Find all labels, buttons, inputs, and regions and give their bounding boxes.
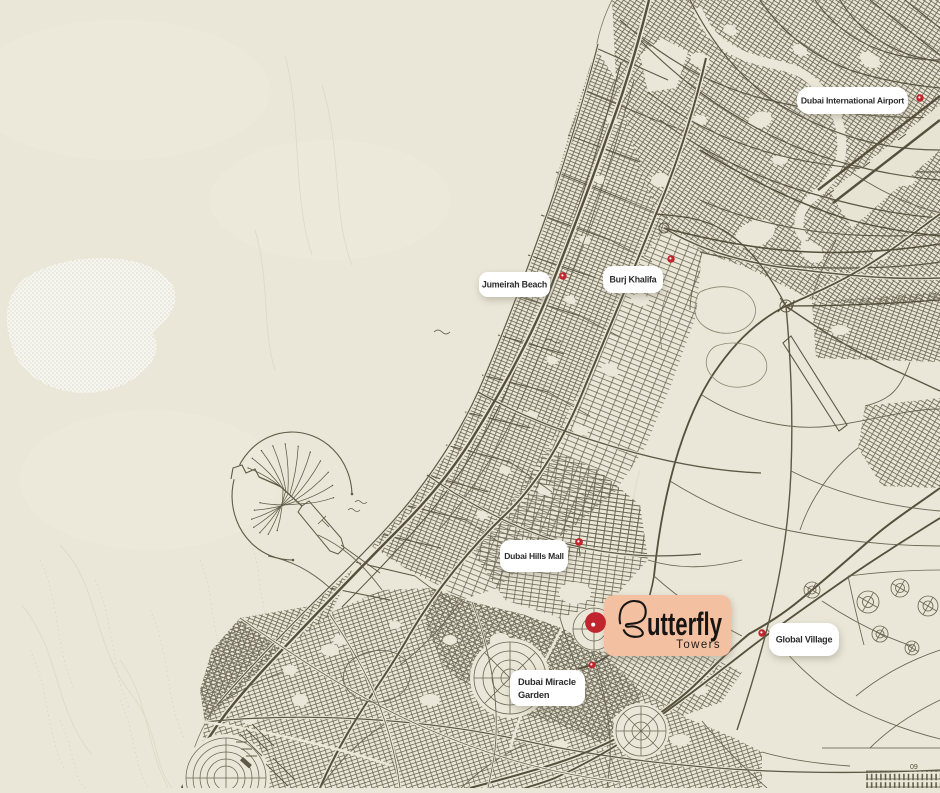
svg-text:Dubai International Airport: Dubai International Airport [801,96,904,106]
svg-text:utterfly: utterfly [647,606,722,642]
svg-text:Garden: Garden [518,690,550,700]
svg-text:Burj Khalifa: Burj Khalifa [610,275,657,285]
svg-text:Global Village: Global Village [776,635,833,645]
svg-text:09: 09 [910,764,918,771]
svg-text:Towers: Towers [676,639,721,651]
svg-text:Dubai Miracle: Dubai Miracle [518,677,576,687]
svg-text:Jumeirah Beach: Jumeirah Beach [482,280,547,290]
svg-text:Dubai Hills Mall: Dubai Hills Mall [504,551,564,561]
